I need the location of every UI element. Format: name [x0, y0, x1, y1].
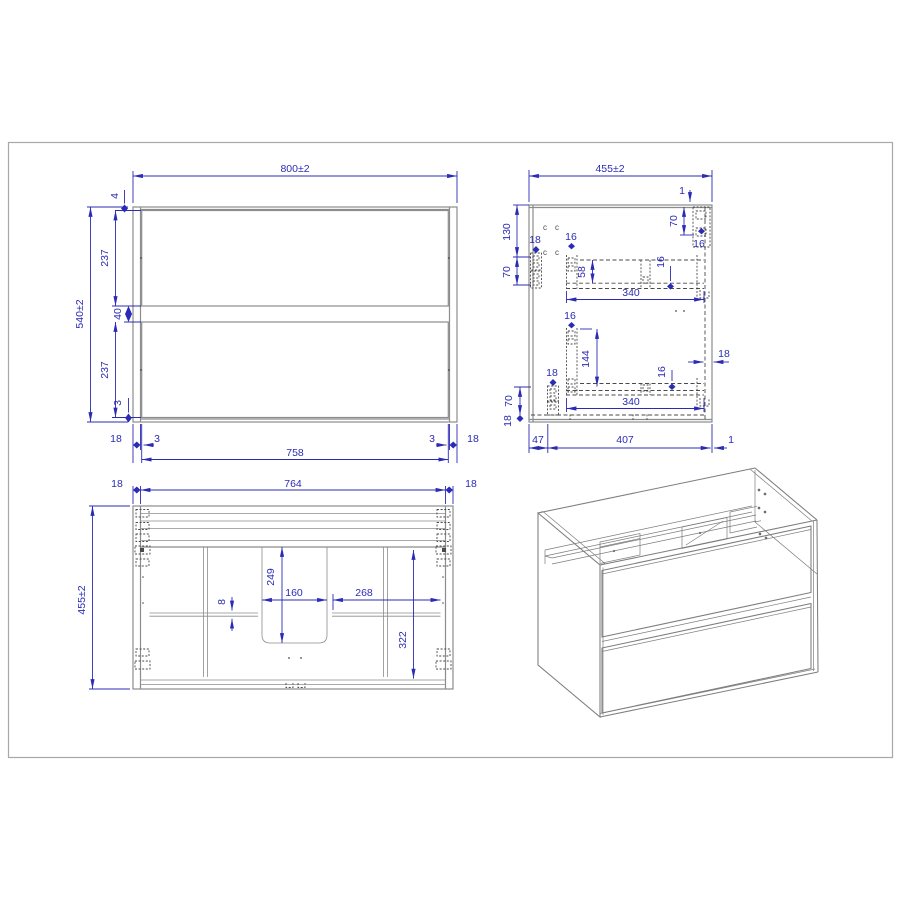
- side-dim-back-18: 18: [688, 348, 730, 362]
- iso-carcass: [538, 468, 818, 717]
- technical-drawing: 800±2 4 540±2 237 40 237: [0, 0, 900, 900]
- iso-drawer-fronts: [602, 526, 811, 713]
- top-dim-cutout-width: 160: [262, 587, 327, 600]
- dim-label: 18: [718, 348, 730, 360]
- hole-mark: c: [555, 223, 559, 232]
- hole-mark: c: [543, 248, 547, 257]
- dim-label: 18: [502, 415, 514, 427]
- dim-label: 58: [576, 266, 588, 278]
- side-dim-slide2-16: 16: [564, 310, 576, 328]
- side-dim-130: 130: [501, 205, 531, 257]
- dim-label: 268: [355, 587, 373, 599]
- side-dim-bottom-70: 70: [503, 387, 531, 415]
- side-dim-70-left: 70: [501, 257, 531, 285]
- side-dim-slide1-58: 58: [576, 260, 593, 283]
- dim-label: 18: [110, 433, 122, 445]
- top-dim-width-row: 18 764 18: [111, 478, 477, 504]
- front-dim-bottom-row: 18 3 758 3 18: [110, 424, 479, 463]
- dim-label: 1: [728, 434, 734, 446]
- side-dim-hanger-16: 16: [693, 228, 705, 250]
- side-hole-marks: c c c c: [543, 223, 559, 257]
- side-dim-slide1-340: 340: [567, 287, 705, 303]
- side-hidden-lines: [531, 207, 711, 420]
- dim-label: 3: [112, 400, 124, 406]
- dim-label: 455±2: [595, 163, 624, 175]
- side-view: c c c c 455±2 1 70 16 130: [501, 163, 734, 453]
- dim-label: 160: [285, 587, 303, 599]
- front-dim-top-gap: 4: [109, 190, 141, 213]
- top-dim-cutout-depth: 249: [265, 547, 282, 643]
- top-dim-bar-thickness: 8: [216, 597, 232, 631]
- hole-mark: c: [555, 248, 559, 257]
- dim-label: 130: [501, 223, 513, 241]
- side-dim-slide2-144: 144: [580, 329, 597, 387]
- dim-label: 40: [112, 308, 124, 320]
- dim-label: 16: [565, 231, 577, 243]
- dim-label: 18: [111, 478, 123, 490]
- dim-label: 4: [109, 193, 121, 199]
- dim-label: 16: [564, 310, 576, 322]
- side-dim-bracket1-18: 18: [529, 234, 541, 253]
- dim-label: 70: [668, 215, 680, 227]
- side-dim-slide1-16: 16: [565, 231, 577, 249]
- side-dim-slide2-bot16: 16: [656, 366, 676, 390]
- drawing-page: 800±2 4 540±2 237 40 237: [0, 0, 900, 900]
- dim-label: 800±2: [280, 163, 309, 175]
- dim-label: 340: [622, 287, 640, 299]
- side-carcass: [529, 205, 712, 422]
- dim-label: 18: [529, 234, 541, 246]
- dim-label: 249: [265, 568, 277, 586]
- front-dim-overall-width: 800±2: [133, 163, 457, 203]
- side-dim-top-back-gap: 1: [679, 185, 690, 202]
- dim-label: 70: [501, 266, 513, 278]
- dim-label: 407: [616, 434, 634, 446]
- front-carcass: [133, 207, 457, 422]
- side-dim-hanger-70: 70: [668, 207, 694, 235]
- iso-back-rails: [545, 506, 757, 564]
- side-dim-bottom-18: 18: [502, 415, 524, 427]
- dim-label: 18: [465, 478, 477, 490]
- top-dim-overall-depth: 455±2: [76, 506, 130, 689]
- side-dim-bottom-row: 47 407 1: [529, 424, 734, 453]
- dim-label: 47: [532, 434, 544, 446]
- dim-label: 18: [467, 433, 479, 445]
- dim-label: 144: [580, 350, 592, 368]
- dim-label: 16: [693, 238, 705, 250]
- dim-label: 16: [656, 366, 668, 378]
- dim-label: 340: [622, 396, 640, 408]
- dim-label: 540±2: [74, 299, 86, 328]
- dim-label: 3: [429, 433, 435, 445]
- dim-label: 758: [286, 447, 304, 459]
- top-dim-inner-depth: 322: [397, 550, 414, 679]
- front-dim-bottom-gap: 3: [112, 398, 132, 423]
- dim-label: 70: [503, 395, 515, 407]
- side-dots: [675, 310, 685, 312]
- dim-label: 237: [99, 361, 111, 379]
- side-dim-slide2-340: 340: [567, 396, 705, 412]
- top-view: 18 764 18 455±2 249 160 268 8: [76, 478, 477, 689]
- dim-label: 455±2: [76, 585, 88, 614]
- dim-label: 3: [154, 433, 160, 445]
- isometric-view: [538, 468, 818, 717]
- front-dim-drawer1: 237: [99, 211, 141, 307]
- dim-label: 237: [99, 249, 111, 267]
- dim-label: 18: [546, 367, 558, 379]
- dim-label: 16: [655, 256, 667, 268]
- dim-label: 764: [284, 478, 302, 490]
- side-dim-slide1-bot16: 16: [655, 256, 674, 290]
- front-view: 800±2 4 540±2 237 40 237: [74, 163, 479, 463]
- side-dim-bracket2-18: 18: [546, 367, 558, 386]
- front-hinge-dots: [140, 257, 450, 371]
- top-dim-right-span: 268: [333, 587, 441, 610]
- dim-label: 8: [216, 599, 228, 605]
- front-dim-mid-gap: 40: [112, 306, 141, 322]
- dim-label: 1: [679, 185, 685, 197]
- hole-mark: c: [543, 223, 547, 232]
- dim-label: 322: [397, 631, 409, 649]
